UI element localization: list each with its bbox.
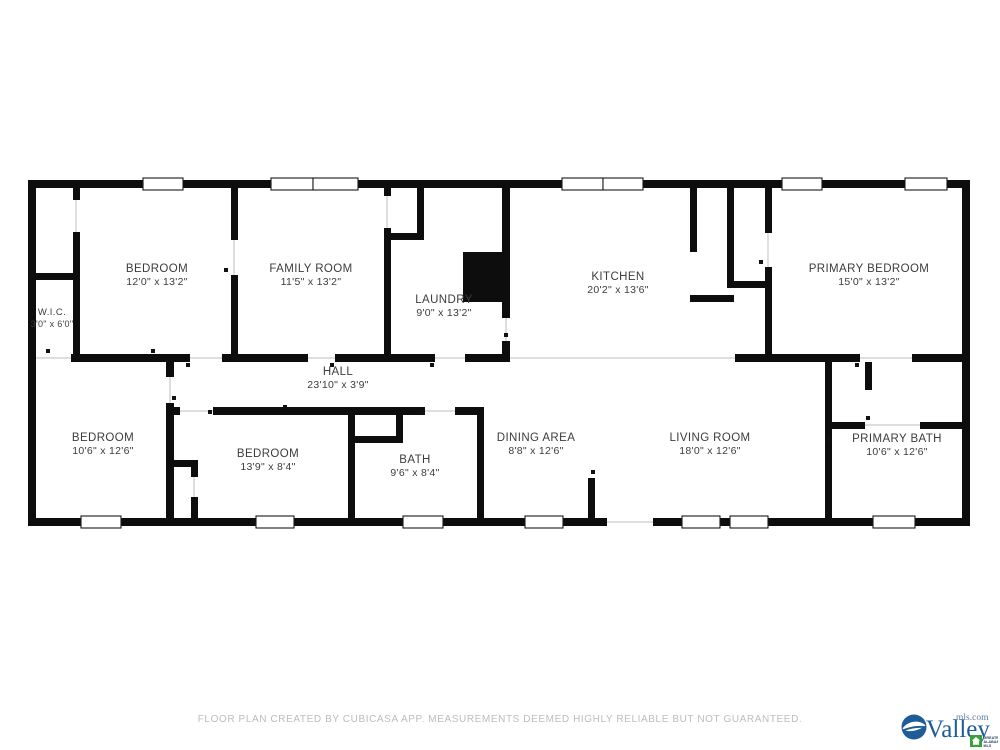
room-dims-hall: 23'10" x 3'9" [307, 379, 369, 391]
room-label-laundry: LAUNDRY [415, 294, 473, 306]
room-dims-living-room: 18'0" x 12'6" [679, 445, 741, 457]
room-label-primary-bedroom: PRIMARY BEDROOM [809, 263, 930, 275]
room-dims-primary-bath: 10'6" x 12'6" [866, 446, 928, 458]
room-dims-wic: 3'0" x 6'0" [31, 319, 74, 329]
room-dims-laundry: 9'0" x 13'2" [416, 307, 471, 319]
disclaimer-text: FLOOR PLAN CREATED BY CUBICASA APP. MEAS… [0, 714, 1000, 725]
room-dims-bedroom1: 12'0" x 13'2" [126, 276, 188, 288]
room-dims-kitchen: 20'2" x 13'6" [587, 284, 649, 296]
interior-walls [28, 186, 970, 525]
room-dims-dining-area: 8'8" x 12'6" [508, 445, 563, 457]
windows [81, 178, 947, 528]
room-label-bedroom1: BEDROOM [126, 263, 188, 275]
room-dims-family-room: 11'5" x 13'2" [281, 276, 342, 288]
room-label-dining-area: DINING AREA [497, 432, 576, 444]
greater-alabama-mls-badge: GREATER ALABAMA MLS [970, 735, 998, 748]
room-label-bedroom2: BEDROOM [72, 432, 134, 444]
room-dims-bedroom2: 10'6" x 12'6" [72, 445, 134, 457]
room-label-primary-bath: PRIMARY BATH [852, 433, 942, 445]
floor-plan-page: BEDROOM 12'0" x 13'2" FAMILY ROOM 11'5" … [0, 0, 1000, 750]
floor-plan-drawing: BEDROOM 12'0" x 13'2" FAMILY ROOM 11'5" … [0, 0, 1000, 750]
room-label-bedroom3: BEDROOM [237, 448, 299, 460]
valleymls-logo: Valley mls.com GREATER ALABAMA MLS [898, 704, 998, 750]
valleymls-logo-graphic: Valley mls.com GREATER ALABAMA MLS [898, 704, 998, 750]
room-dims-primary-bedroom: 15'0" x 13'2" [838, 276, 900, 288]
room-label-family-room: FAMILY ROOM [269, 263, 352, 275]
globe-icon [902, 715, 927, 740]
room-label-hall: HALL [323, 366, 354, 378]
room-label-kitchen: KITCHEN [591, 271, 644, 283]
logo-domain-text: mls.com [956, 713, 989, 723]
room-label-living-room: LIVING ROOM [669, 432, 750, 444]
badge-line-3: MLS [984, 744, 992, 748]
room-label-bath: BATH [399, 454, 430, 466]
room-dims-bath: 9'6" x 8'4" [390, 467, 439, 479]
room-label-wic: W.I.C. [38, 307, 66, 318]
room-dims-bedroom3: 13'9" x 8'4" [240, 461, 295, 473]
